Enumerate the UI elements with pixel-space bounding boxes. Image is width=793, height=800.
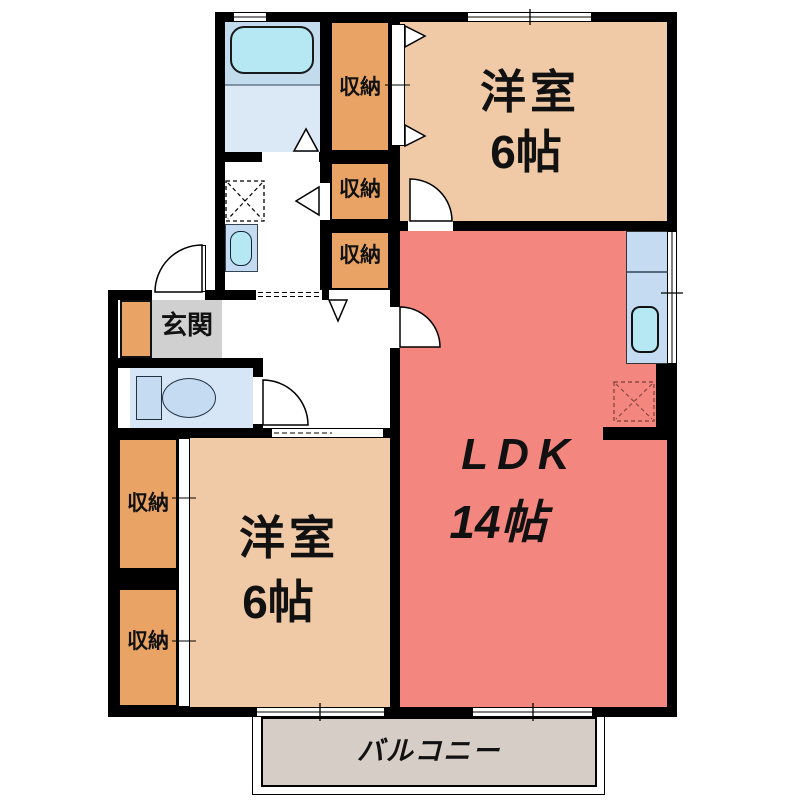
toilet-tank-icon [136,376,162,420]
entrance-label: 玄関 [152,312,222,339]
wall-bath-left [215,12,225,162]
toilet-bowl-icon [162,378,216,418]
wall-washroom-left [215,162,225,300]
closet-top-1-label: 収納 [330,77,390,99]
wall-bedroomtop-bottom [320,221,677,231]
toilet-door-arc [263,380,308,425]
bedroom-top-size: 6帖 [426,128,626,176]
kitchen-sink-icon [631,306,659,353]
ldk-balcony-window [472,707,593,717]
wall-left-outer [108,290,118,717]
bedroom-top-window [467,12,592,22]
closet-bottom-1-label: 収納 [118,493,178,515]
washing-machine-x2 [228,183,262,219]
shoe-cabinet-icon [120,300,152,358]
closet-top-3-label: 収納 [330,245,390,267]
closet-top-3-door-triangle [329,300,347,321]
washroom-sliding-opening [256,290,322,300]
closet-top-2-label: 収納 [330,179,390,201]
bedroom-top-label: 洋室 [430,68,630,116]
closet-top-1-door-strip [391,24,405,146]
bathroom-window [233,12,267,22]
wall-top [215,12,677,22]
bathroom-floor [225,85,320,152]
bathroom-door-gap [262,152,319,162]
closet-top-2-door-gap [320,183,330,220]
bedroom-bottom-balcony-window [256,707,385,717]
closet-bottom-2-label: 収納 [118,631,178,653]
room-bedroom-bottom [190,438,390,707]
entrance-door-leaf [196,245,206,292]
washbasin-sink-icon [230,231,252,266]
wall-entrance-bottom [108,358,263,368]
bedroom-bottom-sliding-door [272,428,383,438]
washing-machine-space-icon [226,181,264,221]
room-bedroom-top [400,21,667,221]
washing-machine-x1 [228,183,262,219]
toilet-door-gap [253,377,263,424]
ldk-label: LDK [420,432,620,478]
entrance-door-arc [155,245,202,292]
bedroom-top-door-gap [408,221,453,231]
closet-sliding-door-strip [178,438,190,707]
floor-plan: 洋室 6帖 LDK 14帖 洋室 6帖 玄関 バルコニー 収納 収納 収納 収納… [0,0,793,800]
bathtub-icon [230,26,314,74]
bedroom-bottom-size: 6帖 [178,578,378,626]
wall-closet-bottom-divider [118,570,178,588]
kitchen-window [667,231,677,364]
balcony-label: バルコニー [261,737,597,765]
ldk-size: 14帖 [398,498,598,546]
ldk-door-gap [390,307,400,348]
bedroom-bottom-label: 洋室 [189,514,389,562]
closet-top-3-door-gap [329,290,390,300]
washroom-closet-door-triangle [296,187,319,215]
